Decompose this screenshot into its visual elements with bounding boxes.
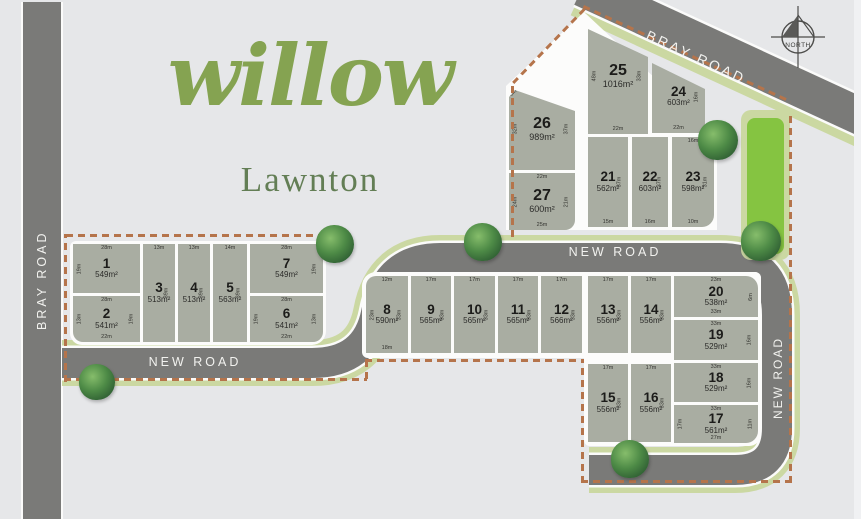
lot-18: 33m16m18529m² [674,363,758,402]
tree [741,221,781,261]
lot-dimension: 31m [704,177,710,188]
lot-dimension: 37m [618,177,624,188]
lot-9: 17m33m9565m² [411,276,451,353]
lot-dimension: 22m [652,126,705,132]
lot-dimension: 13m [178,246,210,252]
lot-dimension: 33m [618,398,624,409]
lot-number: 12 [554,303,569,317]
lot-dimension: 23m [371,309,377,320]
lot-number: 7 [283,257,291,271]
lot-7: 28m19m7549m² [250,244,323,293]
lot-number: 6 [283,307,291,321]
lot-dimension: 24m [514,196,520,207]
lot-17: 33m17m11m27m17561m² [674,405,758,443]
lot-dimension: 32m [514,124,520,135]
lot-dimension: 28m [73,246,140,252]
lot-dimension: 39m [165,288,171,299]
lot-dimension: 27m [674,436,758,442]
lot-dimension: 17m [454,278,495,284]
north-compass-icon: NORTH [768,4,828,76]
lot-dimension: 14m [213,246,247,252]
bray-road-left-label: BRAY ROAD [28,178,56,383]
lot-number: 24 [671,85,686,99]
lot-dimension: 33m [441,309,447,320]
lot-area: 549m² [275,270,298,280]
lot-dimension: 11m [748,419,754,429]
lot-dimension: 13m [313,314,319,325]
lot-number: 11 [511,303,525,317]
lot-dimension: 17m [631,366,671,372]
lot-area: 598m² [682,184,705,194]
lot-area: 1016m² [603,79,634,90]
lot-number: 25 [609,63,627,79]
lot-number: 9 [427,303,435,317]
lot-dimension: 21m [565,196,571,207]
lot-dimension: 17m [588,278,628,284]
lot-dimension: 33m [618,309,624,320]
lot-dimension: 16m [748,377,754,388]
lot-dimension: 33m [674,365,758,371]
lot-number: 4 [190,281,198,295]
lot-2: 28m13m19m22m2541m² [73,296,140,342]
lot-dimension: 33m [528,309,534,320]
lot-5: 14m39m5563m² [213,244,247,342]
lot-number: 19 [708,328,723,342]
boundary-dash [511,84,514,237]
boundary-dash [365,359,583,362]
lot-dimension: 17m [541,278,582,284]
lot-number: 22 [642,170,657,184]
lot-12: 17m33m12566m² [541,276,582,353]
lot-dimension: 37m [658,177,664,188]
lot-area: 590m² [376,316,399,326]
new-road-lower-label: NEW ROAD [140,356,250,369]
lot-dimension: 15m [588,220,628,226]
lot-4: 13m39m4513m² [178,244,210,342]
lot-22: 37m16m22603m² [632,137,668,227]
lot-dimension: 48m [593,71,599,82]
lot-dimension: 33m [674,407,758,413]
lot-dimension: 17m [588,366,628,372]
lot-27: 22m24m21m25m27600m² [509,173,575,230]
lot-14: 17m33m14556m² [631,276,671,353]
lot-dimension: 19m [255,314,261,325]
lot-dimension: 39m [200,288,206,299]
lot-dimension: 19m [313,263,319,274]
lot-1: 28m19m1549m² [73,244,140,293]
lot-number: 1 [103,257,111,271]
lot-dimension: 16m [748,335,754,346]
lot-dimension: 33m [661,398,667,409]
estate-masterplan: 28m19m1549m²28m13m19m22m2541m²13m39m3513… [0,0,861,519]
lot-number: 27 [533,188,551,204]
tree [316,225,354,263]
lot-area: 989m² [529,132,555,143]
lot-dimension: 23m [672,63,684,73]
lot-dimension: 17m [679,419,685,430]
lot-dimension: 13m [78,314,84,325]
lot-dimension: 28m [73,298,140,304]
lot-number: 17 [708,412,723,426]
lot-dimension: 12m [366,278,408,284]
lot-area: 566m² [550,316,573,326]
lot-dimension: 17m [411,278,451,284]
new-road-upper-label: NEW ROAD [560,246,670,259]
lot-number: 26 [533,116,551,132]
lot-dimension: 22m [509,175,575,181]
lot-dimension: 22m [250,335,323,341]
lot-number: 5 [226,281,234,295]
lot-dimension: 33m [674,310,758,316]
lot-20: 23m6m33m20538m² [674,276,758,317]
lot-19: 33m16m19529m² [674,320,758,360]
lot-dimension: 33m [638,71,644,82]
lot-dimension: 19m [130,314,136,325]
lot-dimension: 33m [661,309,667,320]
lot-11: 17m33m11565m² [498,276,538,353]
lot-dimension: 33m [485,309,491,320]
lot-dimension: 28m [250,298,323,304]
lot-dimension: 18m [366,346,408,352]
lot-dimension: 24m [536,91,548,101]
lot-dimension: 28m [250,246,323,252]
lot-21: 37m15m21562m² [588,137,628,227]
lot-number: 13 [600,303,615,317]
lot-area: 529m² [705,342,728,352]
lot-area: 538m² [705,298,728,308]
lot-number: 21 [600,170,615,184]
lot-dimension: 22m [73,335,140,341]
lot-dimension: 17m [631,278,671,284]
lot-16: 17m33m16556m² [631,364,671,442]
lot-number: 14 [643,303,658,317]
lot-dimension: 16m [632,220,668,226]
lot-number: 15 [600,391,615,405]
lot-number: 20 [708,285,723,299]
lot-dimension: 17m [498,278,538,284]
lot-area: 541m² [275,321,298,331]
tree [464,223,502,261]
lot-6: 28m19m13m22m6541m² [250,296,323,342]
lot-number: 3 [155,281,163,295]
lot-area: 600m² [529,204,555,215]
compass-label: NORTH [785,42,811,49]
lot-dimension: 22m [588,127,648,133]
boundary-dash [365,361,368,379]
lot-10: 17m33m10565m² [454,276,495,353]
tree [611,440,649,478]
lot-dimension: 25m [509,223,575,229]
lot-13: 17m33m13556m² [588,276,628,353]
lot-area: 549m² [95,270,118,280]
boundary-dash [66,234,346,237]
lot-dimension: 33m [398,309,404,320]
lot-number: 23 [685,170,700,184]
lot-dimension: 37m [565,124,571,135]
new-road-right-label: NEW ROAD [766,318,790,438]
lot-number: 2 [103,307,111,321]
tree [698,120,738,160]
boundary-dash [581,480,792,483]
lot-number: 18 [708,371,723,385]
lot-8: 12m23m33m18m8590m² [366,276,408,353]
lot-number: 10 [467,303,482,317]
lot-area: 603m² [667,98,690,108]
lot-dimension: 33m [572,309,578,320]
lot-area: 529m² [705,384,728,394]
lot-25: 29m48m33m22m251016m² [588,18,648,134]
lot-26: 8m24m32m37m26989m² [509,88,575,170]
lot-dimension: 6m [749,293,755,301]
lot-area: 565m² [463,316,486,326]
lot-area: 541m² [95,321,118,331]
lot-dimension: 16m [695,91,701,102]
lot-dimension: 19m [78,263,84,274]
lot-number: 16 [643,391,658,405]
lot-dimension: 10m [672,220,714,226]
tree [79,364,115,400]
lot-15: 17m33m15556m² [588,364,628,442]
lot-number: 8 [383,303,391,317]
page-edge [854,0,861,519]
lot-dimension: 23m [674,278,758,284]
lot-dimension: 39m [237,288,243,299]
boundary-dash [581,359,584,483]
lot-3: 13m39m3513m² [143,244,175,342]
lot-dimension: 13m [143,246,175,252]
boundary-dash [64,234,67,382]
lot-dimension: 33m [674,322,758,328]
lot-24: 23m16m22m24603m² [652,60,705,133]
